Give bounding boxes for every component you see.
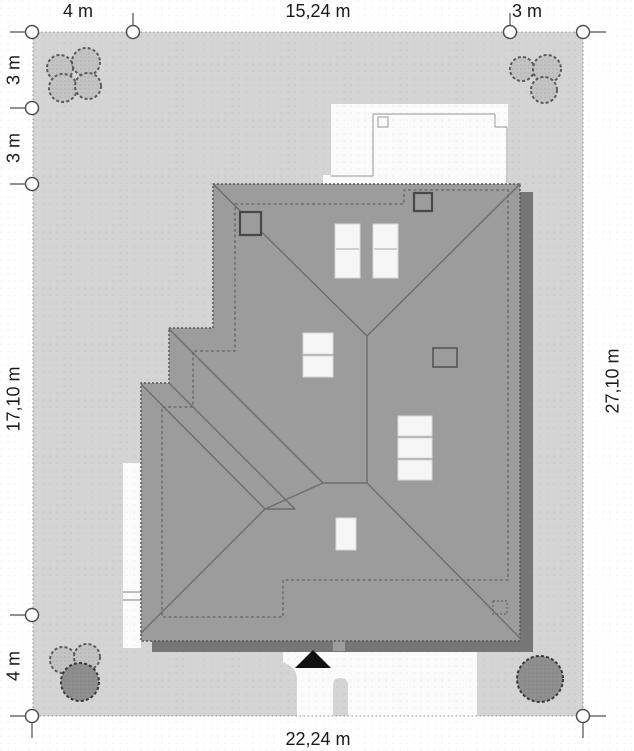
dimension-marker [26,609,39,622]
dim-bottom-width-label: 22,24 m [285,729,350,749]
skylight-c1 [303,333,333,354]
bush-texture [51,76,75,100]
site-plan-page: 4 m 15,24 m 3 m 3 m 3 m 17,10 m 4 m 27,1… [0,0,634,751]
dimension-marker [577,710,590,723]
chimney-left [240,212,261,235]
site-plan-canvas: 4 m 15,24 m 3 m 3 m 3 m 17,10 m 4 m 27,1… [0,0,634,751]
dim-left-1-label: 3 m [4,55,24,85]
bush-bottom-right [517,656,563,702]
dim-top-width-label: 15,24 m [285,1,350,21]
dimension-marker [577,26,590,39]
bush-texture [512,59,532,79]
skylight-e [336,518,356,550]
chimney-top-right [414,193,432,211]
skylight-d1 [398,416,432,436]
skylight-d2 [398,438,432,458]
entrance-step-tab [333,641,345,651]
dim-top-right-label: 3 m [512,1,542,21]
dimension-marker [504,26,517,39]
skylight-c2 [303,356,333,377]
dim-top-left-label: 4 m [63,1,93,21]
roof-shadow-right [520,192,533,652]
dim-left-2-label: 3 m [4,133,24,163]
dimension-marker [127,26,140,39]
bush-texture [533,79,555,101]
skylight-d3 [398,460,432,480]
bush-texture [64,666,96,698]
skylight-a [335,224,360,278]
bush-texture [521,660,559,698]
roof-vent [433,348,457,367]
dim-right-height-label: 27,10 m [603,348,623,413]
skylight-b [373,224,398,278]
bush-texture [77,75,99,97]
dimension-marker [26,178,39,191]
dimension-marker [26,710,39,723]
bush-texture [74,50,98,74]
dim-left-3-label: 17,10 m [4,366,24,431]
dimension-marker [26,26,39,39]
dimension-marker [26,102,39,115]
dim-left-4-label: 4 m [4,651,24,681]
